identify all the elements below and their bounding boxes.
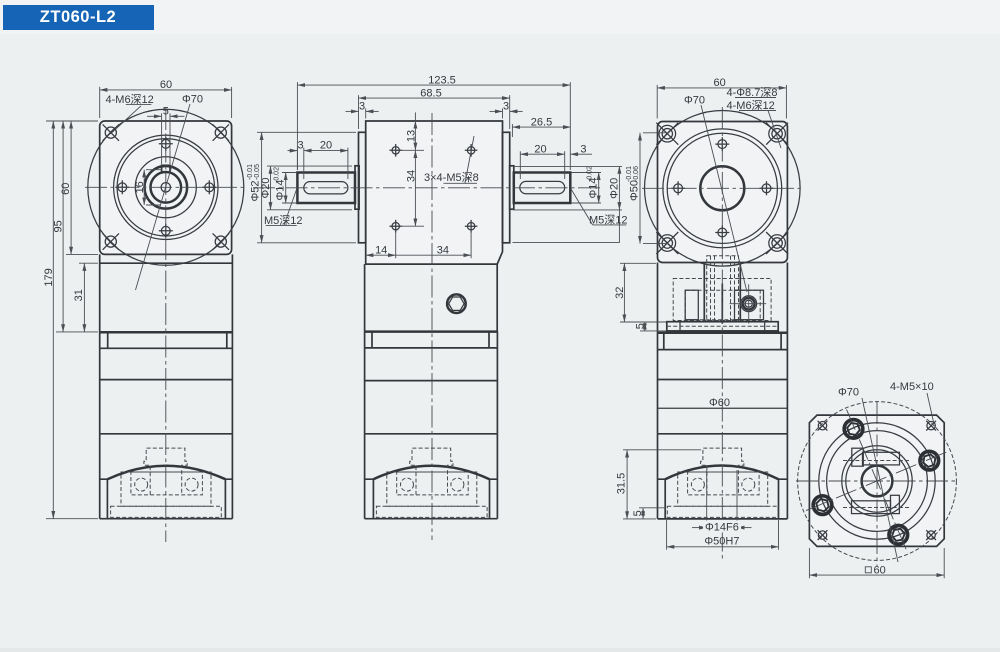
svg-text:3: 3 xyxy=(580,143,586,155)
svg-text:Φ70: Φ70 xyxy=(684,95,705,107)
svg-text:Φ70: Φ70 xyxy=(182,94,203,106)
svg-text:20: 20 xyxy=(320,140,332,152)
svg-text:Φ70: Φ70 xyxy=(838,387,859,399)
svg-text:34: 34 xyxy=(437,244,449,256)
svg-text:31: 31 xyxy=(73,289,85,301)
svg-text:-0.01: -0.01 xyxy=(626,166,633,182)
svg-text:68.5: 68.5 xyxy=(420,87,441,99)
svg-text:20: 20 xyxy=(534,143,546,155)
svg-text:-0.06: -0.06 xyxy=(633,166,640,182)
svg-text:Φ20: Φ20 xyxy=(609,178,621,199)
svg-text:60: 60 xyxy=(713,77,725,89)
svg-text:60: 60 xyxy=(874,564,886,576)
svg-text:34: 34 xyxy=(406,170,418,182)
svg-text:-0.02: -0.02 xyxy=(274,167,281,183)
svg-text:Φ20: Φ20 xyxy=(260,177,272,198)
svg-text:Φ60: Φ60 xyxy=(709,397,730,409)
svg-text:32: 32 xyxy=(614,287,626,299)
svg-text:4-M5×10: 4-M5×10 xyxy=(890,381,934,393)
svg-text:95: 95 xyxy=(53,220,65,232)
svg-text:3: 3 xyxy=(503,101,509,113)
svg-text:Φ14F6: Φ14F6 xyxy=(705,521,739,533)
svg-text:Φ50H7: Φ50H7 xyxy=(704,535,739,547)
svg-text:60: 60 xyxy=(160,79,172,91)
svg-text:-0.01: -0.01 xyxy=(247,164,254,180)
svg-text:14: 14 xyxy=(375,244,387,256)
svg-text:16: 16 xyxy=(134,181,146,193)
svg-text:13: 13 xyxy=(406,130,418,142)
svg-text:60: 60 xyxy=(60,183,72,195)
svg-text:5: 5 xyxy=(163,105,169,117)
svg-text:26.5: 26.5 xyxy=(531,117,552,129)
svg-text:ZT060-L2: ZT060-L2 xyxy=(40,8,116,26)
svg-text:4-M6深12: 4-M6深12 xyxy=(106,93,154,106)
svg-text:5: 5 xyxy=(635,323,647,329)
svg-text:3: 3 xyxy=(359,101,365,113)
svg-text:-0.02: -0.02 xyxy=(587,166,594,182)
svg-text:Φ50: Φ50 xyxy=(629,180,641,201)
svg-text:5: 5 xyxy=(632,510,644,516)
svg-text:3: 3 xyxy=(297,140,303,152)
svg-text:31.5: 31.5 xyxy=(616,473,628,494)
svg-text:123.5: 123.5 xyxy=(428,74,456,86)
svg-text:179: 179 xyxy=(43,268,55,286)
svg-text:3×4-M5深8: 3×4-M5深8 xyxy=(424,171,479,184)
